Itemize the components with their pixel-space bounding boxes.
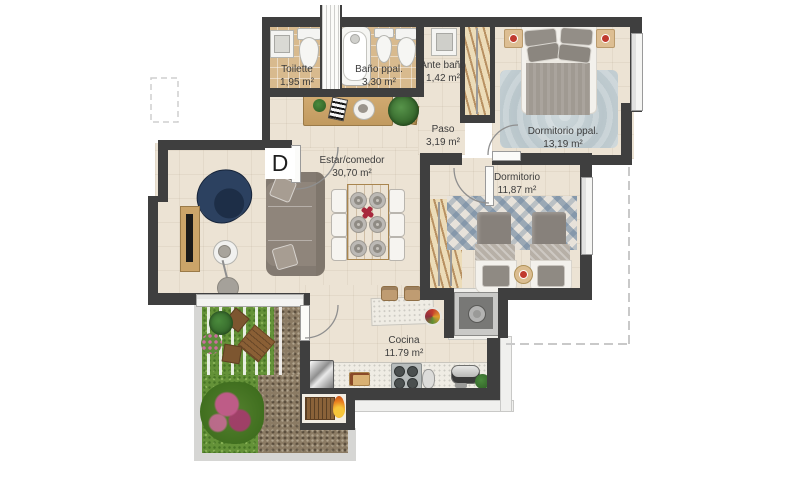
wall <box>487 338 500 400</box>
door-leaf-master <box>492 151 521 161</box>
flower-bush-large <box>200 382 264 444</box>
stool <box>404 286 421 301</box>
single-bed <box>475 204 515 292</box>
pergola-slat <box>279 305 282 375</box>
flower-bush <box>201 333 222 354</box>
wall <box>460 115 495 123</box>
exterior-sill <box>340 400 514 412</box>
wall <box>420 153 430 300</box>
bed-blanket <box>477 212 511 248</box>
room-label-dormitorio-ppal: Dormitorio ppal. 13,19 m² <box>508 126 618 151</box>
place-setting <box>369 216 386 233</box>
dining-chair <box>331 237 347 261</box>
wall <box>444 288 454 338</box>
room-area: 11,87 m² <box>462 185 572 198</box>
door-leaf-terrace <box>300 305 310 341</box>
room-label-paso: Paso 3,19 m² <box>388 124 498 149</box>
decor-bowl-content <box>358 104 368 113</box>
room-area: 1,42 m² <box>388 73 498 86</box>
sofa-cushion-line <box>268 206 312 207</box>
garden-chair <box>222 344 243 365</box>
wall <box>148 196 158 303</box>
wall <box>158 140 168 202</box>
burner <box>394 366 405 377</box>
cutting-board <box>349 372 370 386</box>
lamp-dot <box>519 270 528 279</box>
dining-chair <box>389 213 405 237</box>
exterior-sill <box>500 336 512 412</box>
bed-blanket <box>532 212 566 248</box>
bbq-grill <box>305 397 335 420</box>
lamp-dot <box>601 34 610 43</box>
room-name: Cocina <box>349 335 459 348</box>
dashed-shaft-outline <box>151 78 178 122</box>
garden-fence <box>194 298 202 461</box>
sliding-door <box>196 294 304 307</box>
room-area: 13,19 m² <box>508 139 618 152</box>
sofa-cushion-line <box>268 240 312 241</box>
pillow <box>482 265 510 287</box>
room-name: Dormitorio ppal. <box>508 126 618 139</box>
fern-plant <box>209 311 233 335</box>
window <box>581 177 593 255</box>
wardrobe-rail <box>438 202 440 286</box>
duvet <box>526 60 590 115</box>
pillow <box>537 265 565 287</box>
garden-fence <box>194 453 356 461</box>
wall <box>588 155 632 165</box>
room-label-estar-comedor: Estar/comedor 30,70 m² <box>297 155 407 180</box>
unit-label: D <box>265 148 295 179</box>
potted-plant-large <box>388 95 419 126</box>
room-name: Estar/comedor <box>297 155 407 168</box>
wall <box>498 288 508 338</box>
wall <box>425 153 462 165</box>
room-label-dormitorio: Dormitorio 11,87 m² <box>462 172 572 197</box>
potted-plant <box>313 99 326 112</box>
dining-chair <box>331 189 347 213</box>
vase <box>218 245 231 258</box>
refrigerator <box>309 360 334 391</box>
burner <box>407 366 418 377</box>
window <box>631 33 643 111</box>
stool <box>381 286 398 301</box>
room-name: Ante baño <box>388 60 498 73</box>
room-name: Dormitorio <box>462 172 572 185</box>
tv <box>186 214 193 262</box>
room-area: 3,19 m² <box>388 137 498 150</box>
washing-machine-door <box>468 305 486 323</box>
kettle <box>422 369 435 389</box>
dining-chair <box>389 237 405 261</box>
dining-chair <box>389 189 405 213</box>
gravel-path <box>274 303 300 375</box>
place-setting <box>350 240 367 257</box>
room-area: 30,70 m² <box>297 168 407 181</box>
room-area: 11.79 m² <box>349 348 459 361</box>
single-bed <box>530 204 570 292</box>
wall <box>300 338 310 395</box>
wall <box>502 288 592 300</box>
bathtub-drain <box>350 34 360 44</box>
place-setting <box>369 240 386 257</box>
room-label-cocina: Cocina 11.79 m² <box>349 335 459 360</box>
fruit-bowl <box>423 307 442 326</box>
garden-fence <box>348 428 356 461</box>
sink-basin <box>436 33 453 51</box>
room-name: Paso <box>388 124 498 137</box>
lamp-dot <box>509 34 518 43</box>
flame-icon <box>333 396 345 418</box>
wall <box>262 88 418 97</box>
floor-plan: Toilette 1,95 m² Baño ppal. 3,30 m² Ante… <box>0 0 800 491</box>
room-label-ante-bano: Ante baño 1,42 m² <box>388 60 498 85</box>
wall <box>262 17 642 27</box>
dining-chair <box>331 213 347 237</box>
sink-basin <box>274 35 290 53</box>
